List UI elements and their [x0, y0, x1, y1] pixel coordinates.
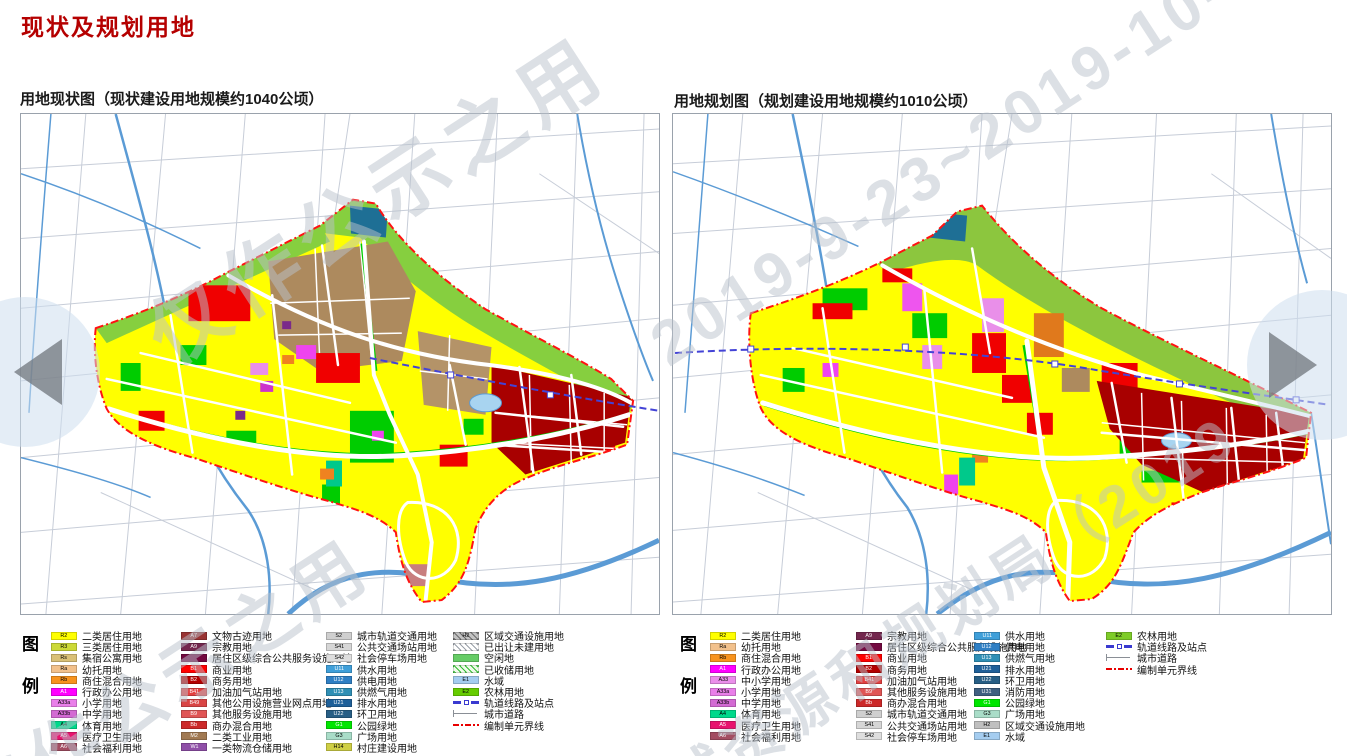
legend-swatch-fill: U21 — [974, 665, 1000, 673]
left-map-caption: 用地现状图（现状建设用地规模约1040公顷） — [20, 88, 323, 109]
legend-swatch-fill: H2 — [974, 721, 1000, 729]
legend-swatch-fill: A9 — [181, 643, 207, 651]
legend-swatch-fill: R2 — [51, 632, 77, 640]
legend-swatch-fill: U22 — [974, 676, 1000, 684]
legend-swatch-fill: B1 — [856, 654, 882, 662]
legend-swatch-fill: W1 — [181, 743, 207, 751]
legend-left-col-1: R2二类居住用地R3三类居住用地Rs集宿公寓用地Ra幼托用地Rb商住混合用地A1… — [51, 630, 142, 753]
current-map-figure — [21, 114, 659, 614]
legend-swatch-fill: E1 — [453, 676, 479, 684]
legend-swatch-fill: S41 — [326, 643, 352, 651]
legend-label: 村庄建设用地 — [357, 740, 417, 755]
legend-swatch-boundary — [1106, 668, 1132, 670]
right-map-caption: 用地规划图（规划建设用地规模约1010公顷） — [674, 90, 977, 111]
legend-swatch-fill: G3 — [974, 710, 1000, 718]
legend-swatch-fill: A4 — [51, 721, 77, 729]
legend-right-col-1: R2二类居住用地Ra幼托用地Rb商住混合用地A1行政办公用地A33中小学用地A3… — [710, 630, 801, 742]
legend-title-right-top: 图 — [680, 630, 697, 655]
legend-swatch-fill: S2 — [326, 632, 352, 640]
legend-swatch-fill: U13 — [326, 688, 352, 696]
legend-item: 已收储用地 — [453, 664, 564, 675]
legend-swatch-fill: E1 — [974, 732, 1000, 740]
legend-swatch-fill: A33a — [51, 699, 77, 707]
legend-swatch-fill: Bb — [181, 721, 207, 729]
legend-swatch-fill: G1 — [974, 699, 1000, 707]
legend-swatch-fill: A1 — [710, 665, 736, 673]
legend-swatch-hatch-green — [453, 665, 479, 673]
legend-swatch-road — [453, 710, 479, 718]
legend-swatch-fill: R3 — [51, 643, 77, 651]
legend-swatch-fill: S42 — [326, 654, 352, 662]
legend-swatch-fill: A6 — [710, 732, 736, 740]
legend-swatch-fill: A4 — [710, 710, 736, 718]
legend-swatch-fill — [453, 654, 479, 662]
legend-swatch-fill: B2 — [181, 676, 207, 684]
legend-swatch-fill: M2 — [181, 732, 207, 740]
legend-swatch-fill: E2 — [1106, 632, 1132, 640]
legend-right-col-4: E2农林用地轨道线路及站点城市道路编制单元界线 — [1106, 630, 1207, 675]
legend-swatch-fill: Rb — [710, 654, 736, 662]
legend-swatch-fill: U11 — [974, 632, 1000, 640]
legend-swatch-fill: H14 — [326, 743, 352, 751]
legend-left-col-4: H2区域交通设施用地已出让未建用地空闲地已收储用地E1水域E2农林用地轨道线路及… — [453, 630, 564, 731]
next-arrow[interactable] — [1247, 290, 1347, 440]
legend-swatch-fill: Rs — [51, 654, 77, 662]
legend-swatch-fill: U21 — [326, 699, 352, 707]
legend-swatch-fill: A5 — [710, 721, 736, 729]
legend-swatch-fill: U31 — [974, 688, 1000, 696]
legend-swatch-fill: E2 — [453, 688, 479, 696]
page: 现状及规划用地 用地现状图（现状建设用地规模约1040公顷） 用地规划图（规划建… — [0, 0, 1347, 756]
legend-swatch-fill: R2 — [710, 632, 736, 640]
legend-swatch-fill: Ra — [51, 665, 77, 673]
legend-swatch-fill: A33b — [51, 710, 77, 718]
legend-label: 水域 — [1005, 729, 1025, 744]
legend-item: A6社会福利用地 — [51, 742, 142, 753]
legend-swatch-boundary — [453, 724, 479, 726]
legend-item: 编制单元界线 — [453, 720, 564, 731]
legend-swatch-rail — [1106, 643, 1132, 651]
right-triangle-icon — [1269, 332, 1317, 398]
legend-swatch-fill: A33a — [710, 688, 736, 696]
legend-swatch-fill: U11 — [326, 665, 352, 673]
legend-label: 一类物流仓储用地 — [212, 740, 292, 755]
legend-swatch-fill — [181, 654, 207, 662]
legend-swatch-road — [1106, 654, 1132, 662]
legend-swatch-fill: B1 — [181, 665, 207, 673]
legend-swatch-fill: U12 — [974, 643, 1000, 651]
legend-swatch-fill: S41 — [856, 721, 882, 729]
legend-right-col-3: U11供水用地U12供电用地U13供燃气用地U21排水用地U22环卫用地U31消… — [974, 630, 1085, 742]
legend-label: 编制单元界线 — [484, 718, 544, 733]
planned-land-use-map[interactable] — [672, 113, 1332, 615]
legend-swatch-fill: S2 — [856, 710, 882, 718]
legend-swatch-fill: G3 — [326, 732, 352, 740]
legend-swatch-fill: B9 — [181, 710, 207, 718]
legend-swatch-fill: A7 — [181, 632, 207, 640]
legend-swatch-rail — [453, 699, 479, 707]
legend-item: H14村庄建设用地 — [326, 742, 437, 753]
legend-title-left-bottom: 例 — [22, 672, 39, 697]
legend-area: 图 例 R2二类居住用地R3三类居住用地Rs集宿公寓用地Ra幼托用地Rb商住混合… — [0, 630, 1347, 756]
legend-swatch-fill: U22 — [326, 710, 352, 718]
legend-swatch-fill: U12 — [326, 676, 352, 684]
legend-swatch-fill: Bb — [856, 699, 882, 707]
legend-swatch-fill: A1 — [51, 688, 77, 696]
legend-swatch-hatch-on-gray: H2 — [453, 632, 479, 640]
planned-map-figure — [673, 114, 1331, 614]
planning-area-current — [21, 114, 659, 614]
legend-swatch-fill: Rb — [51, 676, 77, 684]
legend-left-col-3: S2城市轨道交通用地S41公共交通场站用地S42社会停车场用地U11供水用地U1… — [326, 630, 437, 753]
legend-swatch-fill: A33b — [710, 699, 736, 707]
current-land-use-map[interactable] — [20, 113, 660, 615]
page-title: 现状及规划用地 — [21, 8, 196, 42]
legend-label: 社会福利用地 — [82, 740, 142, 755]
legend-swatch-hatch-gray — [453, 643, 479, 651]
prev-arrow[interactable] — [0, 297, 100, 447]
legend-swatch-fill: B9 — [856, 688, 882, 696]
legend-swatch-fill: B41 — [181, 688, 207, 696]
legend-swatch-fill: U13 — [974, 654, 1000, 662]
legend-item: 编制单元界线 — [1106, 664, 1207, 675]
legend-swatch-fill: B49 — [181, 699, 207, 707]
legend-swatch-fill: A6 — [51, 743, 77, 751]
legend-swatch-fill: A33 — [710, 676, 736, 684]
legend-label: 社会福利用地 — [741, 729, 801, 744]
legend-swatch-fill: B2 — [856, 665, 882, 673]
legend-item: A6社会福利用地 — [710, 731, 801, 742]
legend-label: 社会停车场用地 — [887, 729, 957, 744]
legend-swatch-fill: A5 — [51, 732, 77, 740]
legend-swatch-fill: S42 — [856, 732, 882, 740]
legend-title-right-bottom: 例 — [680, 672, 697, 697]
legend-swatch-fill — [856, 643, 882, 651]
legend-swatch-fill: A9 — [856, 632, 882, 640]
legend-swatch-fill: G1 — [326, 721, 352, 729]
legend-swatch-fill: Ra — [710, 643, 736, 651]
legend-swatch-fill: B41 — [856, 676, 882, 684]
legend-label: 编制单元界线 — [1137, 662, 1197, 677]
legend-title-left-top: 图 — [22, 630, 39, 655]
legend-item: H2区域交通设施用地 — [974, 720, 1085, 731]
left-triangle-icon — [14, 339, 62, 405]
